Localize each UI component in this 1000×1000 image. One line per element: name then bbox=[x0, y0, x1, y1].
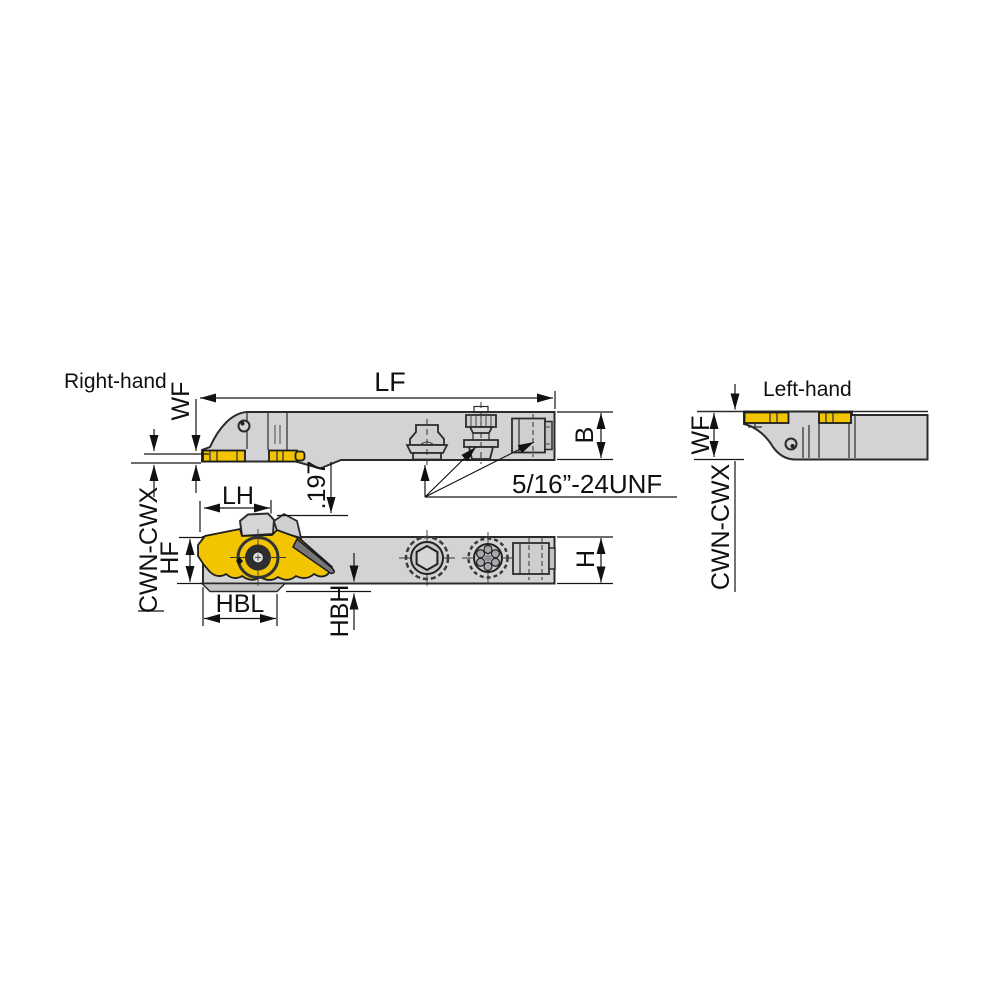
dim-label-hf: HF bbox=[156, 541, 184, 574]
dim-label-h: H bbox=[572, 550, 600, 568]
end-clamp-front bbox=[513, 537, 555, 580]
dim-label-lf: LF bbox=[374, 367, 406, 397]
shank-body-side bbox=[202, 412, 555, 469]
left-hand-label: Left-hand bbox=[763, 378, 852, 401]
insert-front bbox=[240, 514, 274, 537]
insert-side-nub bbox=[296, 452, 305, 461]
left-hand-side-view bbox=[697, 412, 928, 460]
insert-left-hand-a bbox=[745, 413, 789, 424]
series-label-right: CWN-CWX bbox=[707, 463, 735, 590]
tool-holder-dimension-drawing: Right-hand Left-hand LF WF B CWN-CWX .19… bbox=[0, 0, 1000, 1000]
pivot-dot bbox=[241, 422, 245, 426]
dim-label-lh: LH bbox=[222, 482, 254, 510]
thread-spec-label: 5/16”-24UNF bbox=[512, 469, 662, 499]
dim-label-offset: .197 bbox=[303, 461, 331, 510]
dim-label-b: B bbox=[571, 427, 599, 444]
dim-label-wf-right: WF bbox=[167, 382, 195, 421]
right-hand-label: Right-hand bbox=[64, 370, 167, 393]
dim-label-hbh: HBH bbox=[326, 585, 354, 638]
insert-side-left bbox=[203, 451, 245, 462]
insert-left-hand-b bbox=[819, 413, 851, 424]
pivot-hole bbox=[239, 421, 250, 432]
technical-drawing-page: Right-hand Left-hand LF WF B CWN-CWX .19… bbox=[0, 0, 1000, 1000]
right-hand-front-view bbox=[198, 514, 555, 592]
dim-label-wf-left: WF bbox=[687, 416, 715, 455]
pivot-hole-left-hand bbox=[786, 439, 797, 450]
dim-label-hbl: HBL bbox=[216, 590, 265, 618]
